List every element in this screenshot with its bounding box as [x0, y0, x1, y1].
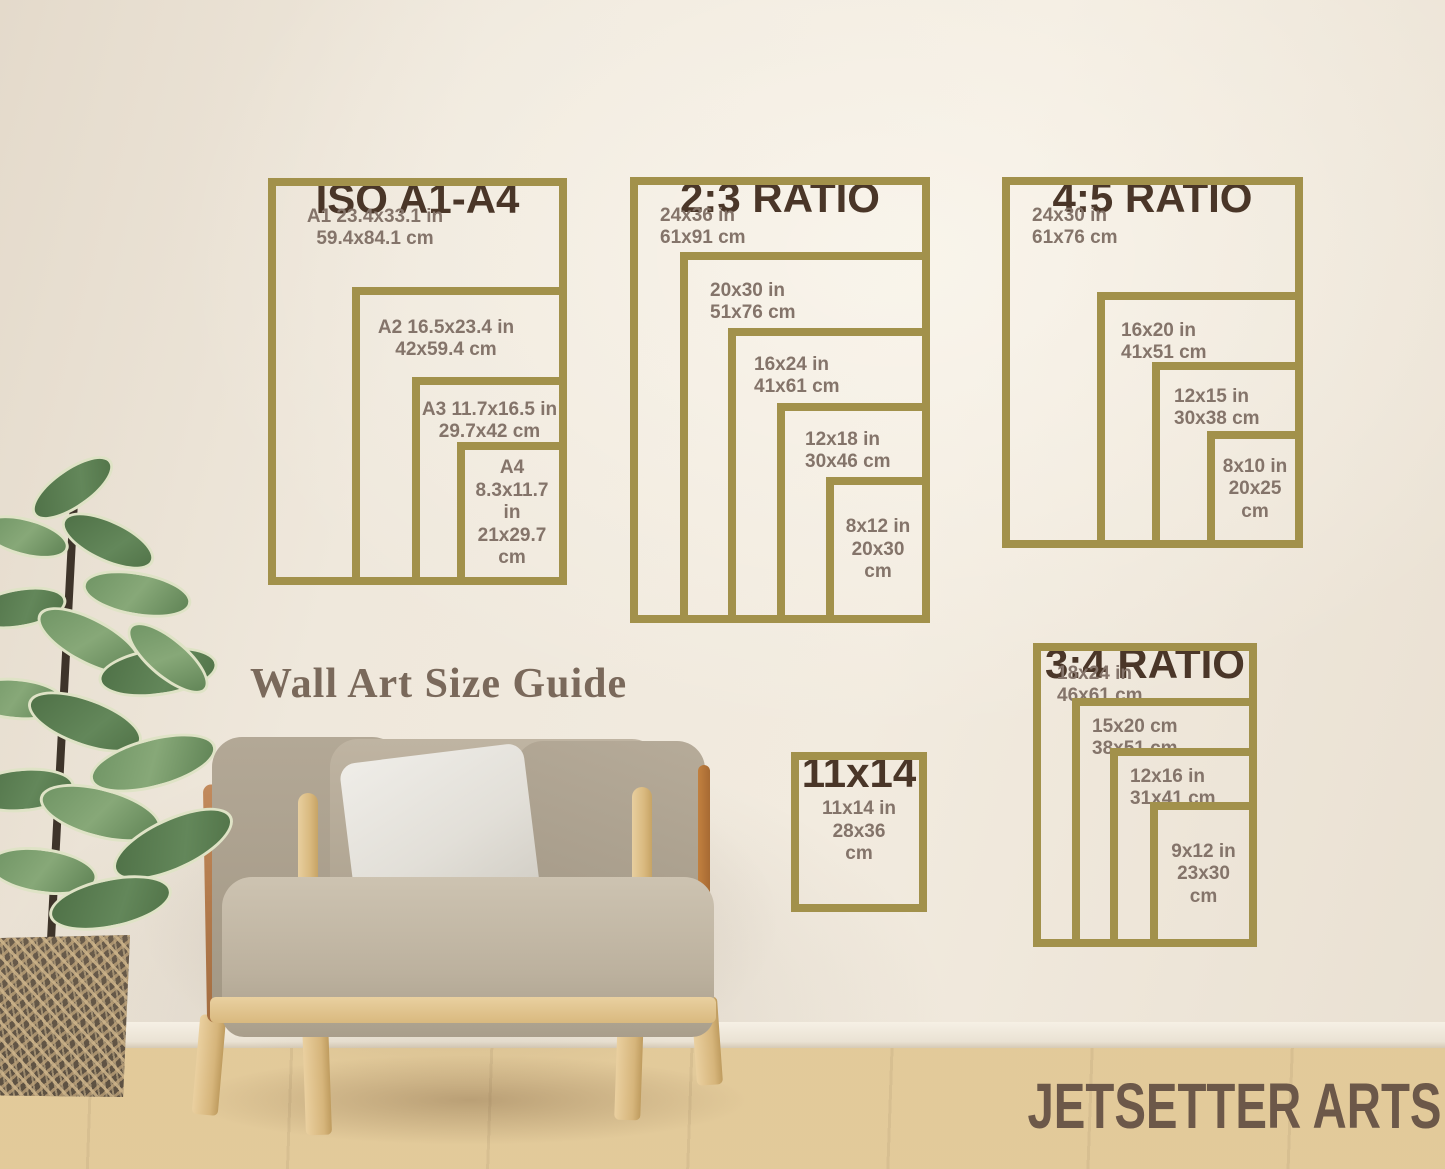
size-frame-label: 24x30 in 61x76 cm — [1032, 205, 1118, 250]
brand-watermark: JETSETTER ARTS — [1027, 1069, 1441, 1143]
size-frame-label: A1 23.4x33.1 in 59.4x84.1 cm — [290, 206, 460, 251]
size-frame-label: A2 16.5x23.4 in 42x59.4 cm — [366, 317, 526, 362]
size-frame-label: 12x18 in 30x46 cm — [805, 429, 891, 474]
size-frame-8x12: 8x12 in 20x30 cm — [826, 477, 930, 623]
plant-basket — [0, 935, 130, 1097]
size-frame-label: 16x20 in 41x51 cm — [1121, 320, 1207, 365]
size-frame-label: 8x10 in 20x25 cm — [1223, 456, 1287, 523]
size-frame-label: 8x12 in 20x30 cm — [846, 516, 910, 583]
size-frame-label: A4 8.3x11.7 in 21x29.7 cm — [465, 457, 559, 569]
size-group-11x14: 11x14 in 28x36 cm — [791, 752, 927, 912]
size-frame-a4: A4 8.3x11.7 in 21x29.7 cm — [457, 442, 567, 585]
armchair — [180, 725, 740, 1145]
plant-leaf — [79, 563, 195, 625]
size-frame-label: A3 11.7x16.5 in 29.7x42 cm — [420, 399, 559, 444]
size-group-2-3: 24x36 in 61x91 cm 20x30 in 51x76 cm 16x2… — [630, 177, 930, 623]
size-frame-9x12: 9x12 in 23x30 cm — [1150, 802, 1257, 947]
size-group-4-5: 24x30 in 61x76 cm 16x20 in 41x51 cm 12x1… — [1002, 177, 1303, 548]
size-frame-8x10: 8x10 in 20x25 cm — [1207, 431, 1303, 548]
size-frame-label: 9x12 in 23x30 cm — [1171, 841, 1235, 908]
potted-plant — [0, 450, 260, 1110]
size-frame-label: 24x36 in 61x91 cm — [660, 205, 746, 250]
size-group-iso: A1 23.4x33.1 in 59.4x84.1 cm A2 16.5x23.… — [268, 178, 567, 585]
chair-front-rail — [210, 997, 716, 1023]
guide-caption: Wall Art Size Guide — [250, 660, 627, 708]
size-frame-label: 20x30 in 51x76 cm — [710, 280, 796, 325]
wall-art-size-guide-scene: ISO A1-A4 2:3 RATIO 4:5 RATIO 3:4 RATIO … — [0, 0, 1445, 1169]
size-frame-label: 16x24 in 41x61 cm — [754, 354, 840, 399]
size-frame-label: 12x15 in 30x38 cm — [1174, 386, 1260, 431]
size-group-3-4: 18x24 in 46x61 cm 15x20 cm 38x51 cm 12x1… — [1033, 643, 1257, 947]
size-frame-11x14: 11x14 in 28x36 cm — [791, 752, 927, 912]
size-frame-label: 11x14 in 28x36 cm — [822, 798, 896, 865]
chair-floor-shadow — [190, 1055, 750, 1145]
